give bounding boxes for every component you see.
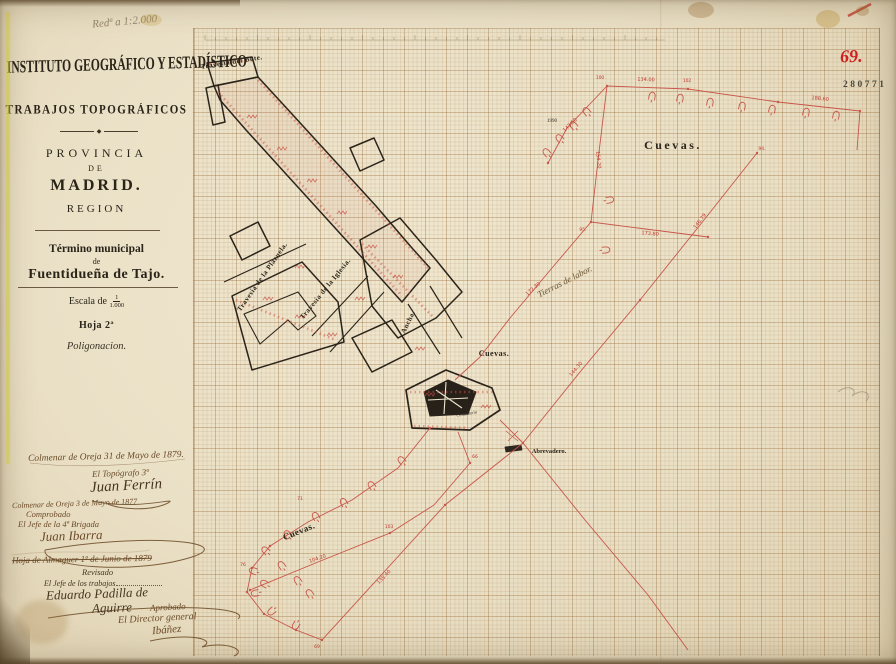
station-number: 95. bbox=[579, 227, 586, 233]
station-dot bbox=[859, 110, 861, 112]
distance-measurement: 173.80 bbox=[641, 230, 659, 238]
cave-icon bbox=[802, 108, 810, 119]
cave-icon bbox=[603, 196, 614, 204]
station-number: 76 bbox=[240, 562, 246, 568]
station-dot bbox=[687, 88, 689, 90]
station-dot bbox=[321, 639, 323, 641]
region-label: REGION bbox=[0, 203, 193, 215]
station-dot bbox=[429, 427, 431, 429]
distance-measurement: 146.79 bbox=[692, 213, 708, 230]
map-label: Tierras de labor. bbox=[536, 263, 594, 299]
scale-denominator: 1.000 bbox=[109, 302, 124, 309]
station-dot bbox=[639, 299, 641, 301]
ornament-divider: ◆ bbox=[60, 128, 138, 135]
station-dot bbox=[590, 221, 592, 223]
de-label: DE bbox=[0, 164, 193, 173]
cave-icon bbox=[768, 105, 776, 116]
scale-label: Escala de bbox=[69, 296, 107, 307]
cave-icon bbox=[266, 605, 278, 616]
distance-measurement: 143.50 bbox=[562, 117, 579, 133]
cave-icon bbox=[339, 497, 349, 509]
cave-icon bbox=[277, 560, 288, 572]
distance-measurement: 188.60 bbox=[811, 95, 829, 103]
red-sheet-number: 69. bbox=[840, 46, 863, 68]
station-dot bbox=[389, 532, 391, 534]
cave-icon bbox=[738, 102, 746, 113]
map-label: Ancha. bbox=[399, 309, 417, 334]
map-drawing: Travesía del Bote.Travesía de la Plazuel… bbox=[0, 0, 896, 664]
station-number: 71 bbox=[297, 496, 303, 502]
cave-icon bbox=[648, 92, 656, 103]
station-dot bbox=[707, 236, 709, 238]
scale-line: Escala de 1 1.000 bbox=[0, 294, 193, 309]
scale-fraction: 1 1.000 bbox=[109, 294, 124, 309]
survey-type-label: Poligonacion. bbox=[0, 341, 193, 352]
station-dot bbox=[469, 462, 471, 464]
station-number: 103 bbox=[385, 524, 394, 530]
station-number: 102 bbox=[683, 78, 692, 84]
red-mark bbox=[415, 347, 425, 350]
registry-stamp: 280771 bbox=[843, 80, 887, 90]
map-label: 1990 bbox=[547, 119, 558, 124]
municipal-label: Término municipal bbox=[0, 243, 193, 255]
station-dot bbox=[263, 613, 265, 615]
red-mark bbox=[355, 297, 365, 300]
cave-icon bbox=[832, 111, 840, 122]
station-dot bbox=[251, 567, 253, 569]
map-label: Cuevas. bbox=[281, 520, 316, 542]
map-label: Cuevas. bbox=[479, 349, 509, 358]
cave-icon bbox=[555, 133, 566, 145]
divider-rule bbox=[35, 230, 160, 231]
paper-edge bbox=[0, 0, 240, 7]
station-dot bbox=[269, 545, 271, 547]
cave-icon bbox=[251, 589, 262, 597]
station-dot bbox=[295, 629, 297, 631]
station-dot bbox=[249, 589, 251, 591]
station-dot bbox=[522, 442, 524, 444]
station-number: 94. bbox=[758, 146, 765, 152]
red-mark bbox=[263, 297, 273, 300]
scale-numerator: 1 bbox=[113, 294, 120, 302]
station-dot bbox=[606, 85, 608, 87]
red-mark bbox=[295, 265, 305, 268]
station-dot bbox=[756, 152, 758, 154]
station-dot bbox=[547, 162, 549, 164]
station-number: 69 bbox=[314, 644, 320, 650]
works-subtitle: TRABAJOS TOPOGRÁFICOS bbox=[0, 103, 193, 117]
map-label: Abrevadero. bbox=[532, 448, 567, 455]
fold-crease bbox=[660, 0, 662, 664]
distance-measurement: 154.20 bbox=[594, 151, 602, 169]
de-label-2: de bbox=[0, 257, 193, 266]
distance-measurement: 134.00 bbox=[637, 77, 655, 84]
station-dot bbox=[246, 591, 248, 593]
map-label: Travesía de la Plazuela. bbox=[235, 241, 289, 313]
revised-label: Revisado bbox=[82, 567, 113, 577]
checked-label: Comprobado bbox=[26, 509, 71, 519]
station-number: 100 bbox=[596, 75, 605, 81]
brigade-chief-signature: Juan Ibarra bbox=[40, 527, 103, 545]
scale-ruler bbox=[205, 35, 665, 40]
director-signature: Ibáñez bbox=[152, 623, 182, 638]
map-label: Cuevas. bbox=[644, 138, 702, 152]
station-dot bbox=[777, 101, 779, 103]
cave-icon bbox=[582, 106, 593, 118]
scanned-map-document: Travesía del Bote.Travesía de la Plazuel… bbox=[0, 0, 896, 664]
cave-icon bbox=[706, 98, 714, 109]
red-mark bbox=[481, 405, 491, 408]
distance-measurement: 104.20 bbox=[308, 553, 327, 564]
municipality-name: Fuentidueña de Tajo. bbox=[0, 267, 193, 283]
cave-icon bbox=[293, 575, 304, 587]
cave-icon bbox=[397, 455, 408, 467]
diamond-icon: ◆ bbox=[97, 128, 102, 135]
province-label: PROVINCIA bbox=[0, 146, 193, 161]
station-dot bbox=[444, 504, 446, 506]
yellow-edge-mark bbox=[6, 12, 10, 464]
underline-rule bbox=[18, 287, 178, 288]
province-name: MADRID. bbox=[0, 177, 193, 195]
red-mark bbox=[327, 333, 337, 336]
cave-icon bbox=[676, 94, 684, 105]
cave-icon bbox=[305, 588, 316, 600]
sheet-number-label: Hoja 2ª bbox=[0, 320, 193, 331]
paper-edge bbox=[0, 594, 30, 664]
cave-icon bbox=[599, 247, 610, 254]
station-number: 66 bbox=[472, 454, 478, 460]
paper-edge bbox=[0, 657, 896, 664]
